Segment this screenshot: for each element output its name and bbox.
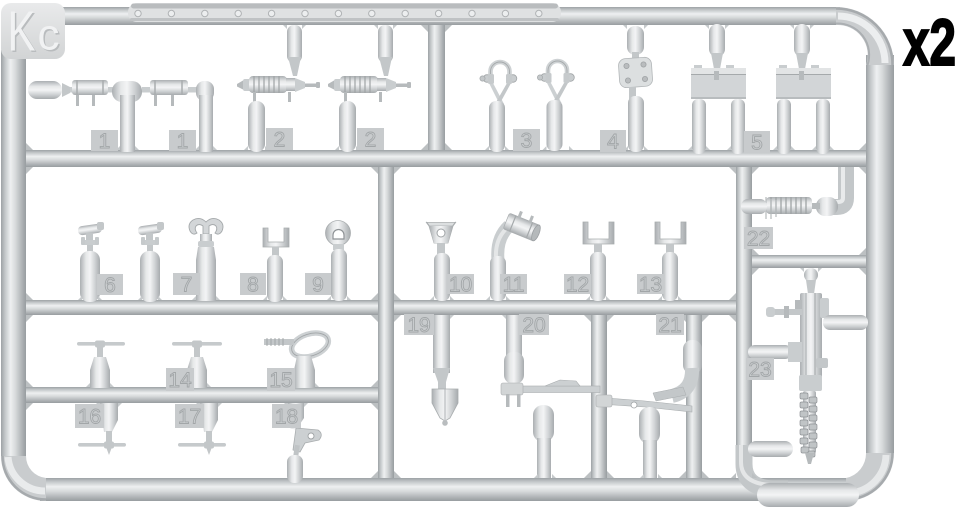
svg-text:5: 5	[751, 132, 763, 155]
svg-text:1: 1	[177, 130, 189, 153]
svg-text:15: 15	[269, 369, 292, 392]
svg-text:3: 3	[521, 130, 533, 153]
svg-text:12: 12	[566, 274, 589, 297]
svg-text:11: 11	[503, 274, 525, 297]
svg-text:10: 10	[449, 274, 472, 297]
svg-text:8: 8	[247, 274, 259, 297]
svg-text:19: 19	[407, 314, 430, 337]
svg-text:1: 1	[99, 130, 111, 153]
svg-text:14: 14	[168, 369, 192, 392]
svg-text:2: 2	[365, 129, 377, 152]
svg-text:21: 21	[658, 314, 681, 337]
svg-text:23: 23	[748, 359, 771, 382]
svg-text:18: 18	[275, 406, 298, 429]
svg-text:7: 7	[181, 274, 193, 297]
svg-text:x2: x2	[903, 5, 956, 79]
svg-text:9: 9	[312, 274, 324, 297]
svg-text:16: 16	[78, 406, 101, 429]
svg-text:22: 22	[747, 228, 770, 251]
svg-text:2: 2	[274, 129, 286, 152]
svg-text:13: 13	[639, 274, 662, 297]
svg-text:20: 20	[522, 314, 545, 337]
svg-text:c: c	[38, 11, 60, 60]
svg-text:4: 4	[607, 131, 619, 154]
svg-text:6: 6	[104, 274, 116, 297]
svg-text:17: 17	[178, 406, 201, 429]
svg-text:K: K	[8, 0, 36, 64]
